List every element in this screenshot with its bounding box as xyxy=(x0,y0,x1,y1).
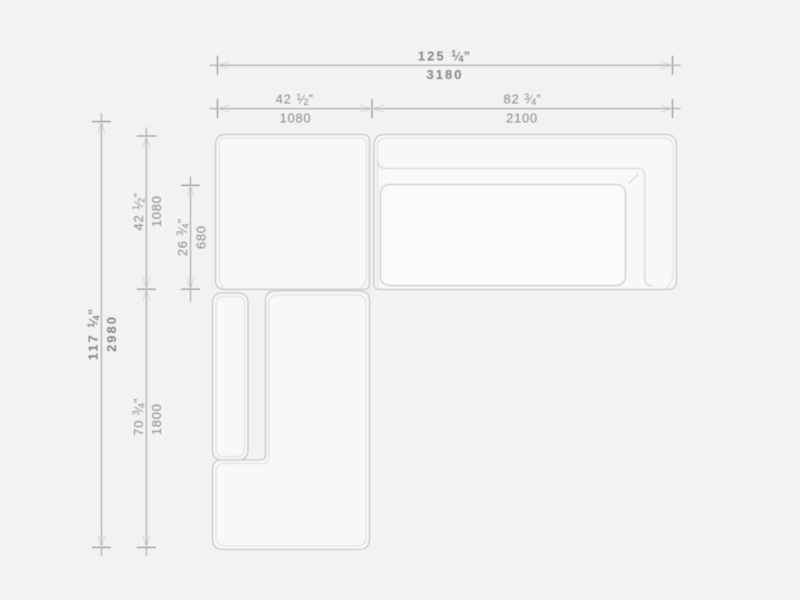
svg-text:680: 680 xyxy=(194,225,209,249)
svg-text:117 1⁄4”: 117 1⁄4” xyxy=(85,307,101,361)
svg-text:42 1⁄2”: 42 1⁄2” xyxy=(276,91,314,107)
svg-text:1800: 1800 xyxy=(149,403,164,435)
svg-text:42 1⁄2”: 42 1⁄2” xyxy=(130,192,146,230)
svg-text:1080: 1080 xyxy=(149,195,164,227)
svg-text:3180: 3180 xyxy=(427,67,464,82)
svg-text:2980: 2980 xyxy=(104,315,119,352)
svg-text:82 3⁄4”: 82 3⁄4” xyxy=(503,91,541,107)
svg-text:70 3⁄4”: 70 3⁄4” xyxy=(130,398,146,436)
svg-text:1080: 1080 xyxy=(280,110,312,125)
svg-text:125 1⁄4”: 125 1⁄4” xyxy=(418,48,472,64)
svg-text:26 3⁄4”: 26 3⁄4” xyxy=(174,218,190,256)
svg-text:2100: 2100 xyxy=(506,110,538,125)
